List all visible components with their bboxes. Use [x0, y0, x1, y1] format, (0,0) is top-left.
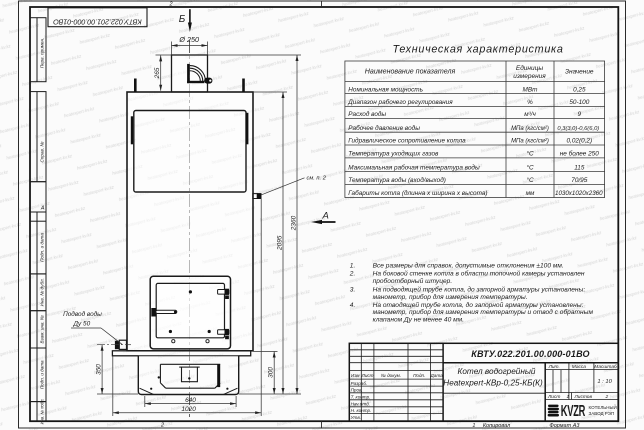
svg-text:Перв. примен.: Перв. примен.: [40, 38, 45, 69]
svg-text:манометр, прибор для измерения: манометр, прибор для измерения температу…: [373, 308, 594, 316]
svg-text:Heatexpert-КВр-0,25-КБ(К): Heatexpert-КВр-0,25-КБ(К): [443, 379, 543, 388]
svg-text:манометр, прибор для измерения: манометр, прибор для измерения температу…: [373, 293, 528, 301]
svg-text:Масштаб: Масштаб: [594, 364, 617, 370]
svg-text:Все размеры для справок, допус: Все размеры для справок, допустимые откл…: [373, 262, 564, 270]
svg-text:На боковой стенке котла в обла: На боковой стенке котла в области топочн…: [373, 269, 585, 277]
svg-text:3.: 3.: [350, 287, 356, 294]
svg-text:1020: 1020: [181, 406, 196, 413]
svg-text:Масса: Масса: [572, 364, 587, 370]
svg-text:2095: 2095: [276, 235, 283, 251]
svg-text:Значение: Значение: [565, 68, 594, 75]
svg-text:Н. контр.: Н. контр.: [351, 408, 372, 413]
svg-text:Пров.: Пров.: [351, 388, 363, 393]
svg-text:Максимальная рабочая температу: Максимальная рабочая температура воды: [348, 163, 480, 171]
svg-text:Номинальная мощность: Номинальная мощность: [348, 86, 423, 93]
svg-text:Лит.: Лит.: [548, 364, 560, 370]
svg-text:1.: 1.: [350, 263, 356, 270]
svg-text:70/95: 70/95: [571, 177, 587, 184]
svg-text:Подп. и дата: Подп. и дата: [40, 233, 45, 262]
svg-text:°С: °С: [526, 176, 534, 184]
svg-text:Утв.: Утв.: [351, 415, 361, 420]
svg-text:Наименование показателя: Наименование показателя: [365, 67, 456, 75]
svg-text:Подп.: Подп.: [413, 373, 425, 378]
svg-text:Б: Б: [179, 14, 186, 25]
svg-text:клапаном Ду не менее 40 мм.: клапаном Ду не менее 40 мм.: [373, 317, 465, 324]
svg-text:Т. контр.: Т. контр.: [351, 395, 371, 400]
svg-text:Котел водогрейный: Котел водогрейный: [458, 367, 536, 376]
svg-text:Температура воды (вход/выход): Температура воды (вход/выход): [348, 176, 446, 184]
svg-text:МПа (кгс/см²): МПа (кгс/см²): [511, 139, 549, 145]
svg-text:115: 115: [574, 164, 585, 171]
svg-text:Разраб.: Разраб.: [351, 381, 368, 386]
svg-text:Диапазон рабочего регулировани: Диапазон рабочего регулирования: [347, 98, 453, 106]
svg-text:4.: 4.: [350, 302, 356, 309]
svg-text:Габариты котла (длинна х ширин: Габариты котла (длинна х ширина х высота…: [348, 189, 487, 197]
svg-text:0,3(3,0)-0,6(6,0): 0,3(3,0)-0,6(6,0): [557, 126, 599, 132]
svg-text:9: 9: [578, 111, 582, 118]
svg-text:Изм: Изм: [351, 373, 360, 378]
svg-text:1: 1: [472, 423, 475, 429]
svg-text:300: 300: [267, 367, 274, 378]
svg-text:м³/ч: м³/ч: [524, 111, 536, 118]
svg-text:1030х1020х2360: 1030х1020х2360: [555, 190, 603, 197]
svg-text:Лист: Лист: [361, 373, 374, 378]
svg-text:А: А: [40, 206, 45, 212]
svg-text:Инв. № дубл.: Инв. № дубл.: [40, 278, 45, 306]
svg-text:Единицы: Единицы: [516, 64, 543, 72]
svg-text:измерения: измерения: [513, 73, 546, 80]
svg-text:Подвод воды: Подвод воды: [63, 310, 102, 318]
svg-text:2: 2: [168, 2, 172, 8]
svg-text:МПа (кгс/см²): МПа (кгс/см²): [511, 126, 549, 132]
svg-text:°С: °С: [526, 150, 534, 158]
svg-text:2: 2: [605, 394, 609, 400]
svg-text:КВТУ.022.201.00.000-01ВО: КВТУ.022.201.00.000-01ВО: [53, 18, 142, 27]
svg-text:Ду 50: Ду 50: [72, 321, 90, 328]
svg-text:%: %: [527, 99, 533, 106]
svg-text:265: 265: [154, 67, 161, 79]
svg-text:см. п. 2: см. п. 2: [307, 175, 327, 181]
svg-text:Справ. №: Справ. №: [40, 142, 45, 163]
svg-text:Техническая характеристика: Техническая характеристика: [392, 44, 563, 56]
svg-text:МВт: МВт: [523, 86, 539, 93]
svg-text:На подводящей трубе котла, до: На подводящей трубе котла, до запорной а…: [373, 286, 586, 294]
svg-text:Рабочее давление воды: Рабочее давление воды: [348, 124, 420, 132]
svg-text:пробоотборный штуцер.: пробоотборный штуцер.: [373, 277, 453, 285]
svg-text:0,25: 0,25: [573, 86, 586, 93]
svg-text:640: 640: [185, 397, 196, 404]
svg-text:Ø 250: Ø 250: [178, 35, 199, 44]
svg-text:50-100: 50-100: [569, 99, 589, 106]
svg-text:0,02(0,2): 0,02(0,2): [567, 138, 593, 145]
svg-text:1: 1: [567, 394, 570, 400]
svg-text:Инв. № подл.: Инв. № подл.: [40, 398, 45, 424]
svg-text:1 : 10: 1 : 10: [597, 379, 612, 385]
svg-text:не более 250: не более 250: [560, 150, 599, 158]
svg-text:°С: °С: [526, 163, 534, 171]
svg-text:Гидравлическое сопротивление к: Гидравлическое сопротивление котла: [348, 137, 466, 145]
svg-text:№ докум.: № докум.: [381, 373, 401, 378]
svg-text:Дата: Дата: [430, 373, 444, 378]
svg-text:Температура уходящих газов: Температура уходящих газов: [348, 150, 439, 158]
svg-text:На отводящей трубе котла, до з: На отводящей трубе котла, до запорной ар…: [373, 301, 584, 309]
svg-text:Расход воды: Расход воды: [348, 110, 386, 118]
svg-text:Лист: Лист: [547, 394, 560, 400]
svg-text:Подп. и дата: Подп. и дата: [40, 360, 45, 389]
svg-text:2360: 2360: [291, 215, 298, 231]
svg-text:Листов: Листов: [574, 394, 593, 400]
svg-text:Формат А3: Формат А3: [549, 423, 580, 429]
svg-text:Копировал: Копировал: [483, 423, 510, 429]
svg-text:КОТЕЛЬНЫЙ: КОТЕЛЬНЫЙ: [589, 403, 617, 410]
svg-text:мм: мм: [526, 190, 535, 197]
svg-text:KVZR: KVZR: [561, 402, 585, 420]
svg-text:Взам. инв. №: Взам. инв. №: [40, 315, 45, 343]
svg-text:350: 350: [95, 364, 102, 375]
svg-text:КВТУ.022.201.00.000-01ВО: КВТУ.022.201.00.000-01ВО: [471, 349, 590, 359]
svg-text:2: 2: [160, 423, 164, 429]
svg-text:Нач.отд.: Нач.отд.: [351, 402, 370, 407]
svg-text:ЗАВОД РЭП: ЗАВОД РЭП: [589, 411, 615, 416]
svg-text:А: А: [322, 211, 329, 222]
svg-text:2.: 2.: [349, 270, 356, 277]
